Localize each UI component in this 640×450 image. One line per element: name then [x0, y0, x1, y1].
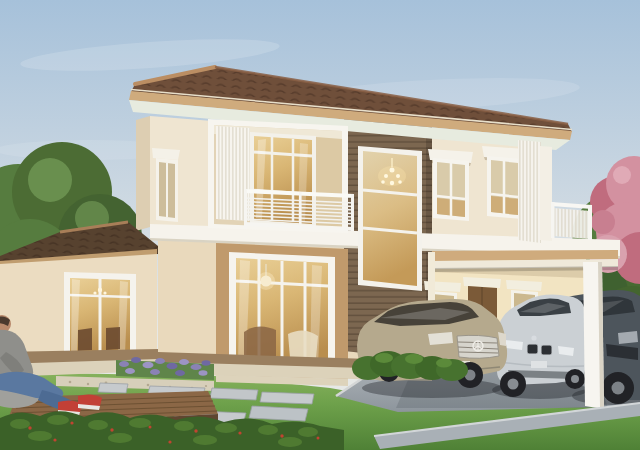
kidney-grille [527, 344, 538, 354]
stepping-stone [210, 388, 258, 400]
side-window [152, 148, 180, 222]
corner-trim [540, 146, 552, 241]
chair-silhouette [78, 328, 92, 351]
bedroom-window-left [428, 149, 473, 221]
car-silver [497, 295, 586, 397]
lounge-chair-silhouette [288, 330, 318, 358]
sofa-silhouette [244, 326, 276, 358]
stepping-stone [98, 383, 128, 393]
kidney-grille [541, 345, 552, 355]
headlight [428, 332, 453, 345]
car-badge [531, 335, 536, 340]
right-louver-screen [518, 140, 541, 243]
wing-window [64, 272, 136, 360]
stepping-stone [249, 406, 308, 421]
house-rendering-image [0, 0, 640, 450]
balcony-inner-wall [316, 137, 342, 228]
chair-silhouette [106, 327, 120, 350]
scene-canvas [0, 0, 640, 450]
carport-column [583, 262, 604, 409]
stepping-stone [260, 392, 314, 404]
double-height-window [358, 146, 422, 291]
headlight [618, 331, 638, 344]
side-wall [136, 116, 150, 231]
license-plate [531, 361, 547, 368]
